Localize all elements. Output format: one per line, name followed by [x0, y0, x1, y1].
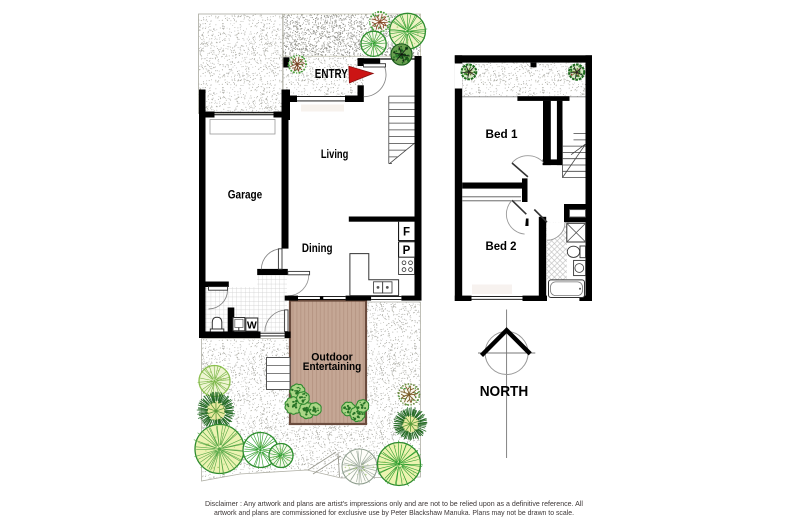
- svg-text:Disclaimer : Any artwork and p: Disclaimer : Any artwork and plans are a…: [205, 499, 583, 508]
- svg-text:artwork and plans are commissi: artwork and plans are commissioned for e…: [214, 508, 574, 517]
- svg-text:NORTH: NORTH: [480, 384, 529, 400]
- svg-text:Bed 2: Bed 2: [486, 239, 517, 253]
- svg-text:Living: Living: [321, 147, 349, 161]
- svg-text:Bed 1: Bed 1: [486, 127, 518, 141]
- svg-text:F: F: [403, 227, 410, 239]
- svg-text:Entertaining: Entertaining: [303, 361, 362, 373]
- svg-text:Garage: Garage: [228, 188, 263, 202]
- svg-text:ENTRY: ENTRY: [315, 67, 348, 81]
- svg-text:Dining: Dining: [302, 241, 333, 255]
- svg-text:P: P: [403, 245, 411, 257]
- svg-text:W: W: [247, 320, 257, 332]
